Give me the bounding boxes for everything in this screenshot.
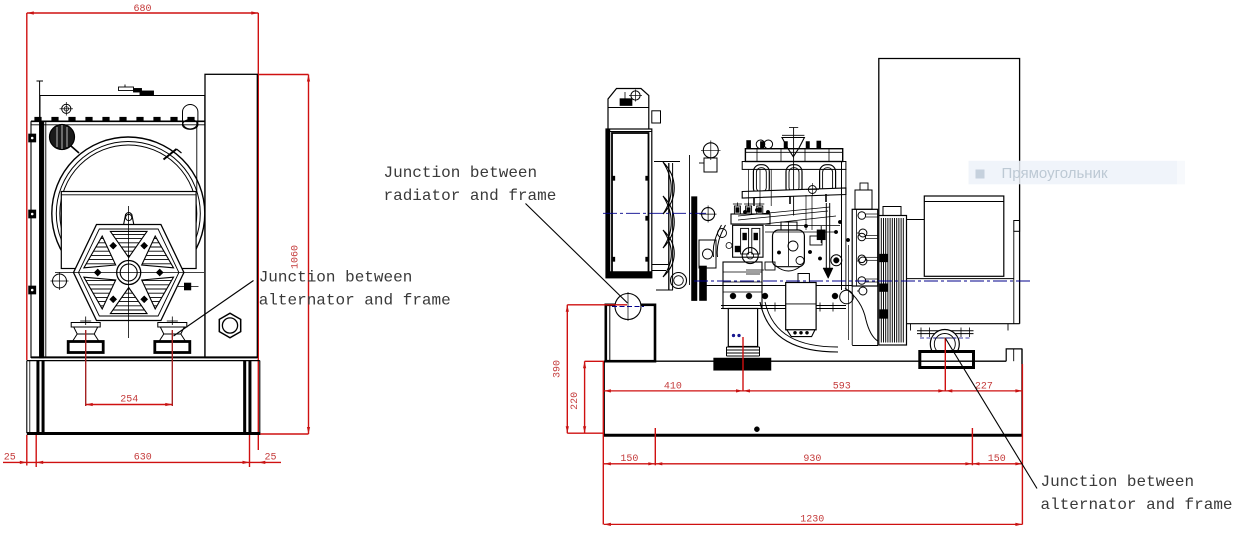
svg-text:25: 25 — [4, 453, 16, 464]
svg-text:Прямоугольник: Прямоугольник — [1002, 165, 1108, 182]
svg-text:25: 25 — [264, 453, 276, 464]
svg-text:150: 150 — [620, 454, 638, 465]
svg-text:390: 390 — [553, 360, 564, 378]
svg-text:930: 930 — [803, 454, 821, 465]
svg-text:410: 410 — [664, 381, 682, 392]
svg-text:1230: 1230 — [800, 515, 824, 526]
svg-text:alternator and frame: alternator and frame — [1041, 496, 1233, 514]
svg-text:593: 593 — [833, 381, 851, 392]
svg-text:alternator and frame: alternator and frame — [259, 292, 451, 310]
svg-text:radiator and frame: radiator and frame — [384, 187, 557, 205]
svg-text:Junction between: Junction between — [259, 269, 413, 287]
svg-text:1060: 1060 — [291, 245, 302, 269]
svg-text:254: 254 — [120, 395, 138, 406]
svg-text:630: 630 — [134, 453, 152, 464]
svg-text:220: 220 — [570, 392, 581, 410]
svg-text:150: 150 — [988, 454, 1006, 465]
svg-text:Junction between: Junction between — [1041, 473, 1195, 491]
svg-text:680: 680 — [133, 4, 151, 15]
svg-text:Junction between: Junction between — [384, 164, 538, 182]
